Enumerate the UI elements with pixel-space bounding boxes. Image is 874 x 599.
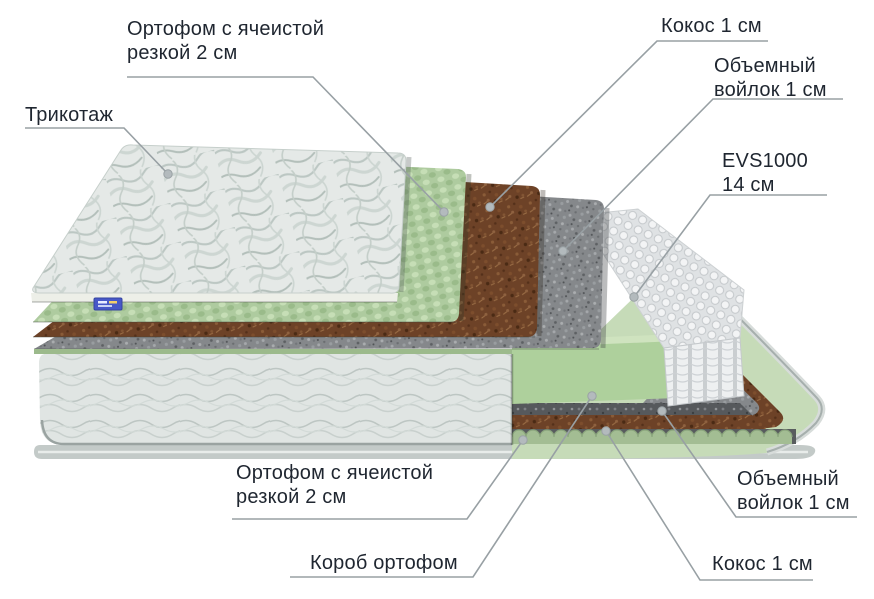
label-coconut-bottom: Кокос 1 см [712, 552, 813, 576]
label-line: 14 см [722, 173, 808, 197]
label-line: Ортофом с ячеистой [236, 461, 433, 485]
bottom-box-front [39, 354, 512, 445]
label-line: Кокос 1 см [712, 552, 813, 576]
mattress-diagram: Трикотаж Ортофом с ячеистой резкой 2 см … [0, 0, 874, 599]
label-line: войлок 1 см [737, 491, 850, 515]
label-coconut-top: Кокос 1 см [661, 14, 762, 38]
label-felt-bottom: Объемный войлок 1 см [737, 467, 850, 515]
label-ortofoam-top: Ортофом с ячеистой резкой 2 см [127, 17, 324, 65]
label-foam-box: Короб ортофом [310, 551, 458, 575]
label-evs1000: EVS1000 14 см [722, 149, 808, 197]
label-line: войлок 1 см [714, 78, 827, 102]
label-line: Кокос 1 см [661, 14, 762, 38]
label-line: Объемный [737, 467, 850, 491]
label-line: Трикотаж [25, 103, 113, 127]
label-felt-top: Объемный войлок 1 см [714, 54, 827, 102]
spring-coils-face [664, 338, 744, 406]
label-line: Ортофом с ячеистой [127, 17, 324, 41]
bottom-cover-edge [34, 349, 512, 354]
label-tricot: Трикотаж [25, 103, 113, 127]
label-line: EVS1000 [722, 149, 808, 173]
bottom-coconut-strip [512, 415, 766, 429]
brand-tag [94, 298, 122, 310]
layer-tricot [31, 145, 406, 302]
label-line: резкой 2 см [236, 485, 433, 509]
label-line: Объемный [714, 54, 827, 78]
bottom-felt-strip [512, 403, 752, 415]
label-ortofoam-bottom: Ортофом с ячеистой резкой 2 см [236, 461, 433, 509]
label-line: резкой 2 см [127, 41, 324, 65]
label-line: Короб ортофом [310, 551, 458, 575]
bottom-ortofoam-zigzag [512, 429, 796, 444]
